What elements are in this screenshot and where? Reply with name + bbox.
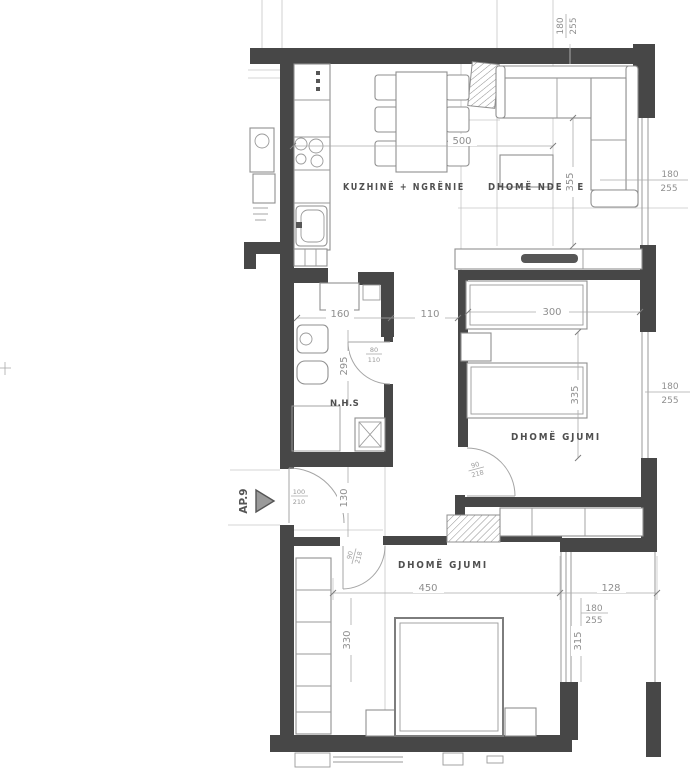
shower-cabinet [320,283,359,310]
bed2-bed [395,618,503,736]
washing-machine [355,418,385,451]
dim-bath-depth: 295 [337,351,350,381]
knob-dot [316,87,320,91]
wall-living-bed1-partition [458,270,640,280]
room-label-kitchen-dining: KUZHINË + NGRËNIE [343,182,465,193]
chair [375,75,398,100]
niche-wardrobe-row [500,508,643,536]
chair [446,107,469,132]
sofa-armrest [496,66,505,118]
wall-right-lower [641,458,657,552]
svg-text:330: 330 [342,630,353,649]
room-label-bedroom2: DHOMË GJUMI [398,560,488,571]
chair [375,107,398,132]
svg-text:295: 295 [339,356,350,375]
svg-text:180: 180 [585,604,602,614]
cabinet-below-sink [294,249,327,266]
svg-text:255: 255 [661,396,678,406]
dim-hall-depth: 130 [337,483,350,513]
svg-text:335: 335 [570,385,581,404]
dim-dining-width: 500 [452,136,471,147]
svg-text:210: 210 [293,498,305,506]
dim-bath-width: 160 [330,309,349,320]
chair [375,141,398,166]
dim-bed2-depth: 330 [340,625,353,655]
room-label-bedroom1: DHOMË GJUMI [511,432,601,443]
svg-text:180: 180 [661,382,678,392]
tv [521,254,578,263]
wall-balcony-right-low [646,682,661,757]
toilet [297,361,328,384]
dim-balcony-width: 128 [601,583,620,594]
bath-sink [297,325,328,353]
dim-bed1-width: 300 [542,307,561,318]
svg-text:110: 110 [368,356,380,364]
hatched-shaft-hall [447,515,500,542]
kitchen-counter [294,64,330,266]
dim-balcony-depth: 315 [571,626,584,656]
svg-text:255: 255 [585,616,602,626]
dim-living-depth: 355 [563,167,576,197]
dining-table [396,72,447,172]
dim-bed2-width: 450 [418,583,437,594]
wall-bed1-bottom [465,497,643,507]
wall-top [250,48,637,64]
svg-text:130: 130 [339,488,350,507]
entrance-label: AP.9 [238,488,250,513]
chair [446,75,469,100]
dim-hall-width: 110 [420,309,439,320]
room-label-bath: N.H.S [330,399,359,409]
dining-set [375,72,469,172]
knob-dot [316,79,320,83]
svg-text:100: 100 [293,488,305,496]
wall-bottom [270,735,572,752]
svg-text:315: 315 [573,631,584,650]
svg-text:355: 355 [565,172,576,191]
svg-text:80: 80 [370,346,378,354]
wall-left-lower [280,525,294,752]
wall-bed2-top-right [383,536,447,545]
wall-bed2-top-left [291,537,340,546]
bed1-nightstand [461,333,491,361]
hatched-column-living [468,62,499,109]
tv-console [455,249,642,269]
bed2-nightstand-right [505,708,536,736]
floor-plan-drawing: KUZHINË + NGRËNIE DHOMË NDENJE DHOMË GJU… [0,0,691,768]
wall-kitchen-left [280,48,294,268]
bed2-wardrobe [296,558,331,734]
wall-bath-right-upper [384,312,393,342]
svg-text:180: 180 [556,17,566,34]
wall-bath-bottom [280,452,393,467]
wall-balcony-left-low [560,682,578,740]
svg-text:255: 255 [660,184,677,194]
svg-text:180: 180 [661,170,678,180]
svg-text:255: 255 [569,17,579,34]
knob-dot [316,71,320,75]
kitchen-sink [296,206,327,246]
faucet [296,222,302,228]
dim-bed1-depth: 335 [568,380,581,410]
floor-plan-canvas: KUZHINË + NGRËNIE DHOMË NDENJE DHOMË GJU… [0,0,691,768]
bed2-nightstand-left [366,710,395,736]
wall-neighbor-stub-v [244,242,256,269]
